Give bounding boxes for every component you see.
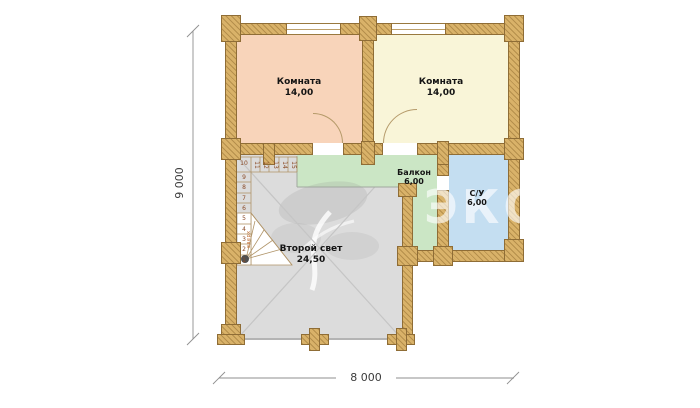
watermark-tree-icon: [271, 174, 379, 290]
log-crossing: [221, 15, 241, 42]
stair-run-step-number: 15: [288, 158, 297, 171]
wall-rooms-bottom-segment: [237, 143, 313, 155]
log-crossing: [221, 138, 241, 160]
log-crossing: [504, 239, 524, 262]
wall-top-segment: [445, 23, 508, 35]
log-post-cross: [396, 328, 407, 351]
log-post-cross: [309, 328, 320, 351]
stair-direction-label: вверх: [246, 230, 252, 248]
log-post-cross: [217, 334, 245, 345]
stair-column-step-number: 5: [238, 214, 250, 224]
stair-column-step-number: 9: [238, 173, 250, 183]
stair-run-step-number: 14: [279, 158, 288, 171]
log-crossing: [397, 246, 418, 266]
log-crossing: [433, 246, 453, 266]
room-right-label: Комната 14,00: [389, 77, 493, 98]
window-room-right: [392, 23, 445, 35]
log-crossing: [361, 141, 375, 165]
log-crossing: [504, 15, 524, 42]
stair-column-step-number: 7: [238, 194, 250, 204]
balcony-label: Балкон 6,00: [374, 168, 454, 187]
stair-run-step-number: 12: [260, 158, 269, 171]
void-label: Второй свет 24,50: [259, 244, 363, 265]
dimension-vertical: 9 000: [173, 153, 187, 213]
floor-plan: 10 11 12 13 14 15 9 8 7 6 5 4 3 2 1 ввер…: [0, 0, 700, 408]
stair-run-step-number: 13: [270, 158, 279, 171]
stair-corner-step-number: 10: [237, 159, 251, 169]
log-crossing: [504, 138, 524, 160]
wall-top-segment: [237, 23, 287, 35]
room-left-label: Комната 14,00: [247, 77, 351, 98]
wall-between-rooms: [362, 35, 374, 143]
wall-rooms-bottom-segment: [417, 143, 508, 155]
bathroom-label: С/У 6,00: [437, 189, 517, 208]
dimension-horizontal: 8 000: [336, 371, 396, 384]
window-room-left: [287, 23, 340, 35]
stair-run-step-number: 11: [251, 158, 260, 171]
stair-column-step-number: 1: [238, 256, 250, 266]
stair-column-step-number: 6: [238, 204, 250, 214]
log-crossing: [359, 16, 377, 41]
log-crossing: [437, 141, 449, 165]
stair-column-step-number: 8: [238, 183, 250, 193]
wall-left: [225, 20, 237, 345]
